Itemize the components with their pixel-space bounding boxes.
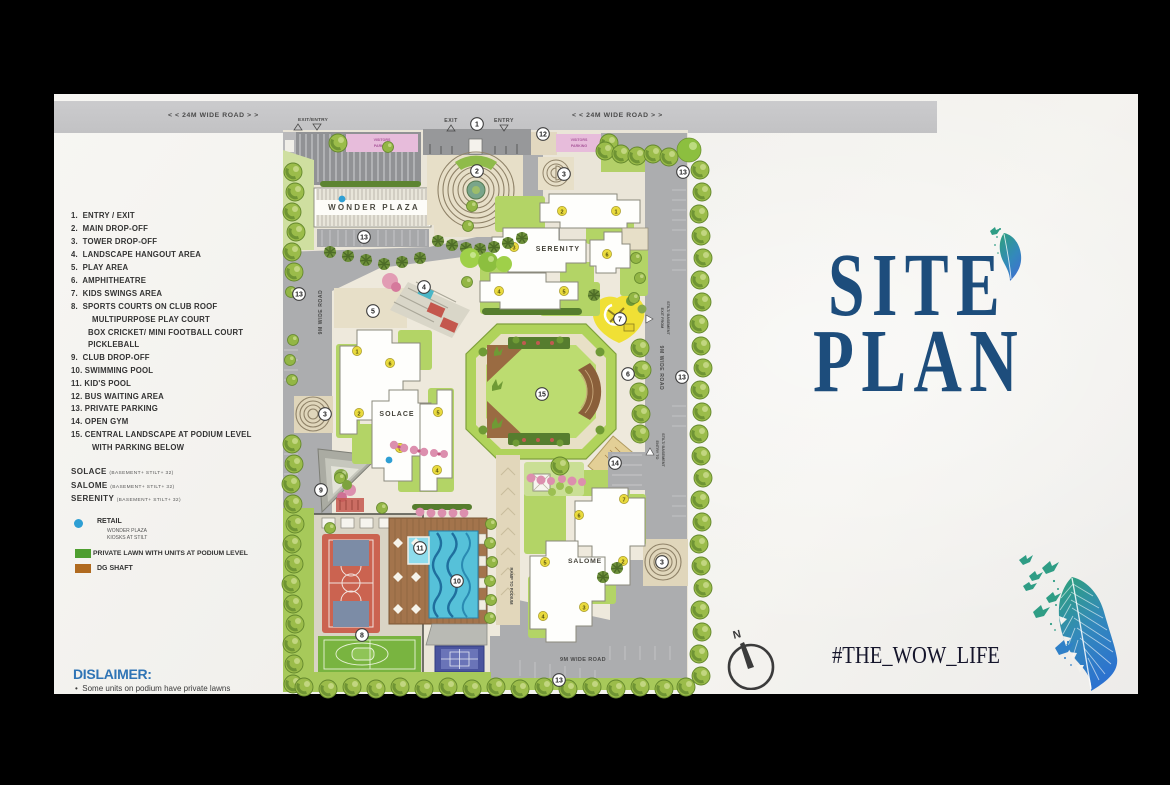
svg-text:13: 13 bbox=[678, 375, 686, 382]
svg-text:2: 2 bbox=[475, 169, 479, 176]
svg-text:9M WIDE ROAD: 9M WIDE ROAD bbox=[318, 290, 324, 335]
svg-text:10: 10 bbox=[453, 579, 461, 586]
svg-text:1: 1 bbox=[614, 210, 617, 216]
svg-text:ENTRY: ENTRY bbox=[494, 118, 514, 124]
svg-text:13: 13 bbox=[360, 235, 368, 242]
svg-text:5: 5 bbox=[543, 561, 546, 567]
svg-text:3: 3 bbox=[562, 172, 566, 179]
svg-text:WONDER PLAZA: WONDER PLAZA bbox=[328, 203, 420, 212]
svg-text:3: 3 bbox=[582, 606, 585, 612]
svg-text:#THE_WOW_LIFE: #THE_WOW_LIFE bbox=[832, 643, 1000, 669]
svg-text:1: 1 bbox=[475, 122, 479, 129]
svg-text:13: 13 bbox=[295, 292, 303, 299]
svg-text:7: 7 bbox=[622, 498, 625, 504]
svg-text:ENTRY TO: ENTRY TO bbox=[655, 441, 659, 460]
svg-text:EXIT FROM: EXIT FROM bbox=[660, 308, 664, 329]
svg-text:11: 11 bbox=[416, 546, 424, 553]
svg-text:8: 8 bbox=[360, 633, 364, 640]
svg-text:PARKING: PARKING bbox=[571, 144, 588, 148]
svg-text:RAMP TO PODIUM: RAMP TO PODIUM bbox=[509, 567, 514, 605]
svg-text:6: 6 bbox=[388, 362, 391, 368]
svg-text:4: 4 bbox=[422, 285, 426, 292]
svg-text:SERENITY: SERENITY bbox=[536, 246, 581, 253]
svg-text:STILT/ BASEMENT: STILT/ BASEMENT bbox=[661, 433, 665, 467]
svg-text:2: 2 bbox=[357, 412, 360, 418]
svg-text:PLAN: PLAN bbox=[813, 312, 1025, 405]
svg-text:14: 14 bbox=[611, 461, 619, 468]
svg-text:EXIT/ENTRY: EXIT/ENTRY bbox=[298, 117, 329, 123]
svg-text:SOLACE: SOLACE bbox=[379, 411, 414, 418]
svg-text:3: 3 bbox=[323, 412, 327, 419]
svg-text:2: 2 bbox=[560, 210, 563, 216]
svg-text:VISITORS: VISITORS bbox=[571, 138, 588, 142]
svg-text:15: 15 bbox=[538, 392, 546, 399]
svg-text:5: 5 bbox=[562, 290, 565, 296]
svg-text:N: N bbox=[732, 628, 743, 642]
svg-text:5: 5 bbox=[436, 411, 439, 417]
svg-text:1: 1 bbox=[355, 350, 358, 356]
svg-text:13: 13 bbox=[555, 678, 563, 685]
svg-text:EXIT: EXIT bbox=[444, 118, 458, 124]
svg-text:STILT/ BASEMENT: STILT/ BASEMENT bbox=[666, 301, 670, 335]
svg-text:13: 13 bbox=[679, 170, 687, 177]
svg-text:6: 6 bbox=[626, 372, 630, 379]
svg-text:7: 7 bbox=[618, 317, 622, 324]
svg-text:9M WIDE ROAD: 9M WIDE ROAD bbox=[658, 346, 664, 391]
svg-text:SALOME: SALOME bbox=[568, 558, 602, 565]
svg-text:9: 9 bbox=[319, 488, 323, 495]
svg-text:9M WIDE ROAD: 9M WIDE ROAD bbox=[560, 657, 606, 663]
svg-text:3: 3 bbox=[660, 560, 664, 567]
svg-text:6: 6 bbox=[577, 514, 580, 520]
svg-text:5: 5 bbox=[371, 309, 375, 316]
svg-text:6: 6 bbox=[605, 253, 608, 259]
svg-text:12: 12 bbox=[539, 132, 547, 139]
